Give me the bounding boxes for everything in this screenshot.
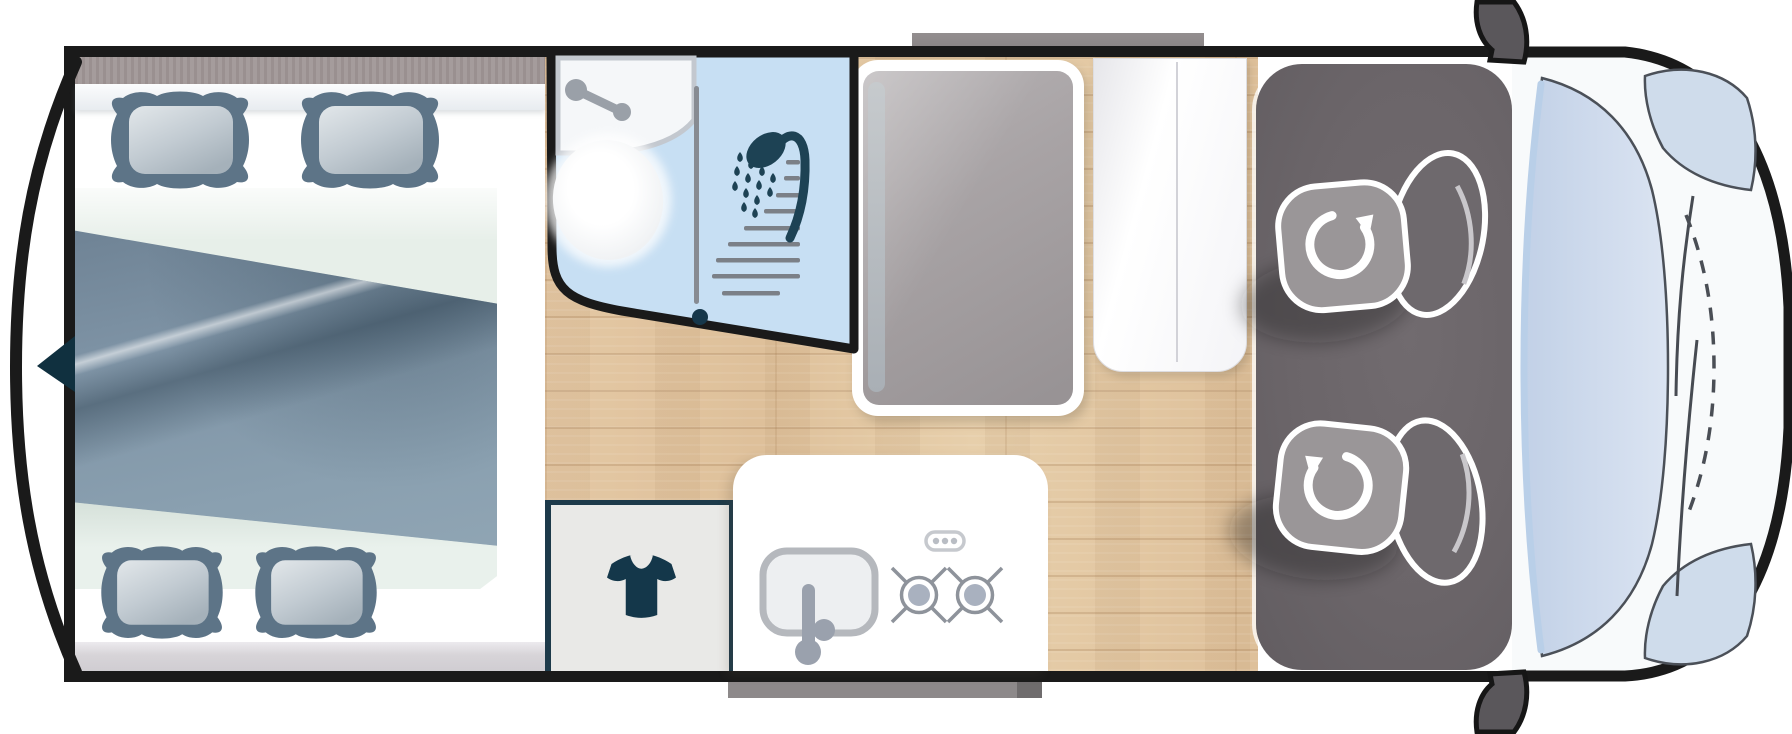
bed-head-shelf — [75, 57, 545, 84]
hood-outline — [1512, 52, 1789, 676]
wiper-blade — [1677, 340, 1697, 596]
fridge-door-panel — [863, 71, 1073, 405]
campervan-floorplan — [0, 0, 1792, 734]
kitchen-counter — [733, 455, 1048, 671]
windshield — [1525, 78, 1668, 656]
side-window-top — [1645, 70, 1756, 190]
fridge-handle — [868, 82, 885, 392]
cabinet-door-seam — [1176, 62, 1178, 362]
bed-foot-shelf — [75, 642, 545, 671]
hood-contour-dashed — [1686, 215, 1714, 519]
driver-cab-floor — [1256, 64, 1512, 670]
vehicle-front — [1512, 52, 1789, 676]
wiper-blade — [1676, 196, 1693, 396]
wardrobe — [545, 500, 735, 671]
bed-headboard — [75, 84, 545, 110]
tall-cabinet — [1093, 58, 1247, 372]
windshield-edge-highlight — [1524, 84, 1541, 650]
side-window-bottom — [1645, 544, 1756, 664]
